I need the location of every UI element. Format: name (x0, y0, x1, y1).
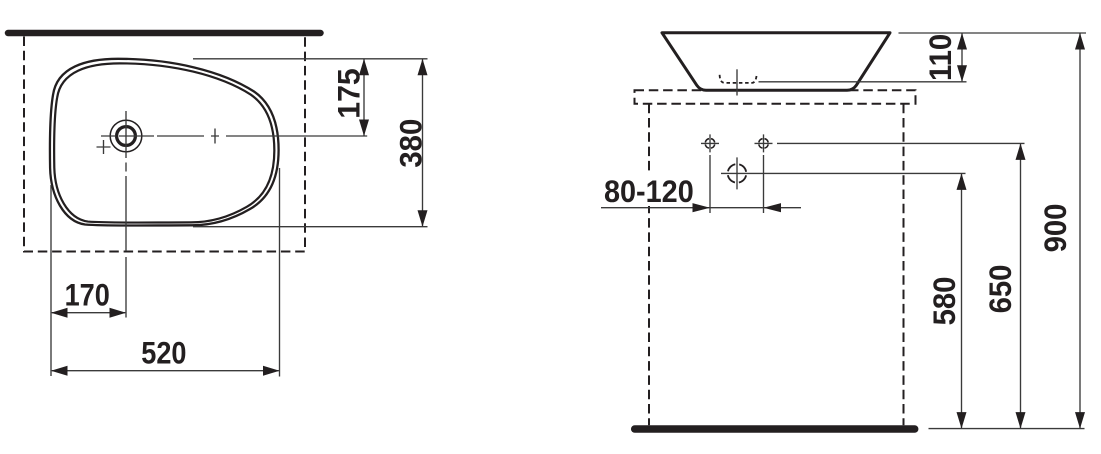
svg-text:520: 520 (141, 336, 186, 371)
svg-text:170: 170 (65, 278, 110, 313)
svg-text:900: 900 (1038, 204, 1073, 253)
svg-text:175: 175 (331, 68, 367, 118)
svg-text:580: 580 (927, 277, 962, 326)
svg-text:80-120: 80-120 (604, 175, 694, 209)
svg-text:380: 380 (394, 119, 429, 168)
svg-text:110: 110 (923, 34, 958, 81)
svg-text:650: 650 (983, 265, 1018, 314)
